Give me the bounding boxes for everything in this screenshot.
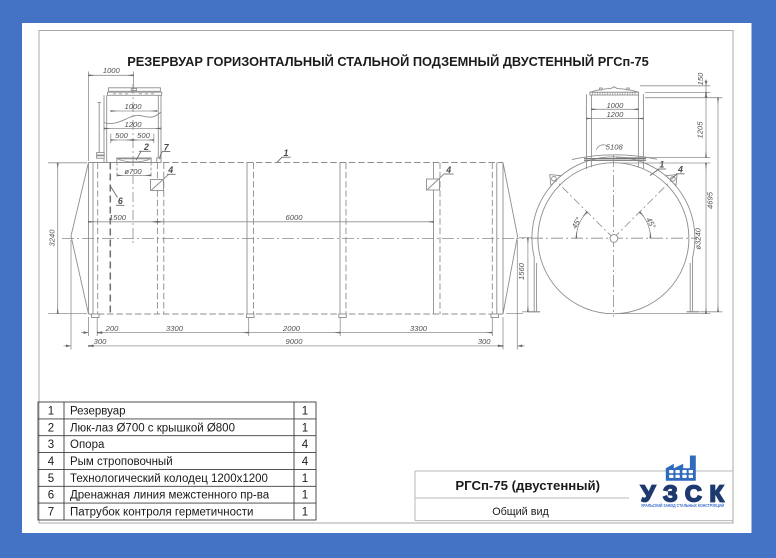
svg-text:150: 150 — [696, 72, 705, 85]
svg-text:5: 5 — [48, 473, 54, 485]
svg-text:ø700: ø700 — [124, 167, 142, 176]
svg-text:1000: 1000 — [606, 101, 624, 110]
svg-text:3300: 3300 — [166, 324, 184, 333]
svg-text:4: 4 — [167, 165, 173, 175]
svg-text:300: 300 — [94, 337, 107, 346]
svg-text:УРАЛЬСКИЙ ЗАВОД СТАЛЬНЫХ КОНСТ: УРАЛЬСКИЙ ЗАВОД СТАЛЬНЫХ КОНСТРУКЦИЙ — [641, 503, 724, 508]
svg-text:2: 2 — [143, 142, 149, 152]
svg-text:500: 500 — [137, 131, 150, 140]
svg-text:Резервуар: Резервуар — [70, 406, 126, 418]
svg-text:РГСп-75 (двустенный): РГСп-75 (двустенный) — [455, 478, 600, 493]
svg-text:1: 1 — [302, 507, 308, 519]
svg-text:1: 1 — [659, 160, 664, 170]
svg-text:4: 4 — [302, 439, 309, 451]
svg-text:1: 1 — [302, 473, 308, 485]
svg-text:200: 200 — [105, 324, 119, 333]
svg-text:9000: 9000 — [286, 337, 304, 346]
svg-text:4695: 4695 — [706, 191, 715, 209]
svg-text:4: 4 — [445, 165, 451, 175]
svg-text:1200: 1200 — [125, 120, 143, 129]
svg-text:1000: 1000 — [125, 102, 143, 111]
svg-text:1: 1 — [302, 422, 308, 434]
svg-text:1: 1 — [302, 490, 308, 502]
svg-text:Опора: Опора — [70, 439, 105, 451]
svg-text:Общий вид: Общий вид — [492, 506, 549, 518]
svg-text:3240: 3240 — [48, 229, 57, 247]
svg-text:500: 500 — [115, 131, 128, 140]
svg-text:Люк-лаз Ø700 с крышкой Ø800: Люк-лаз Ø700 с крышкой Ø800 — [70, 422, 235, 434]
svg-text:1200: 1200 — [606, 110, 624, 119]
svg-text:1: 1 — [48, 406, 54, 418]
svg-text:2: 2 — [48, 422, 54, 434]
svg-text:7: 7 — [48, 507, 54, 519]
svg-text:4: 4 — [302, 456, 309, 468]
svg-text:4: 4 — [48, 456, 55, 468]
svg-text:1560: 1560 — [517, 262, 526, 280]
svg-text:4: 4 — [677, 164, 683, 174]
svg-text:1500: 1500 — [109, 213, 127, 222]
svg-text:1: 1 — [302, 406, 308, 418]
svg-text:2000: 2000 — [282, 324, 301, 333]
svg-text:Технологический колодец 1200х1: Технологический колодец 1200х1200 — [70, 473, 268, 485]
svg-text:5108: 5108 — [606, 142, 624, 151]
svg-text:6: 6 — [48, 490, 54, 502]
svg-text:3: 3 — [48, 439, 54, 451]
svg-text:Патрубок контроля герметичност: Патрубок контроля герметичности — [70, 507, 253, 519]
svg-text:Дренажная линия межстенного пр: Дренажная линия межстенного пр-ва — [70, 490, 270, 502]
svg-text:Рым строповочный: Рым строповочный — [70, 456, 173, 468]
svg-text:1205: 1205 — [695, 121, 704, 139]
svg-text:3300: 3300 — [410, 324, 428, 333]
svg-text:6: 6 — [118, 196, 123, 206]
svg-text:1000: 1000 — [103, 66, 121, 75]
svg-text:1: 1 — [284, 148, 289, 158]
svg-text:300: 300 — [478, 337, 491, 346]
svg-text:ø3240: ø3240 — [694, 227, 703, 249]
svg-text:РЕЗЕРВУАР ГОРИЗОНТАЛЬНЫЙ СТАЛЬ: РЕЗЕРВУАР ГОРИЗОНТАЛЬНЫЙ СТАЛЬНОЙ ПОДЗЕМ… — [127, 54, 649, 69]
svg-text:6000: 6000 — [286, 213, 304, 222]
